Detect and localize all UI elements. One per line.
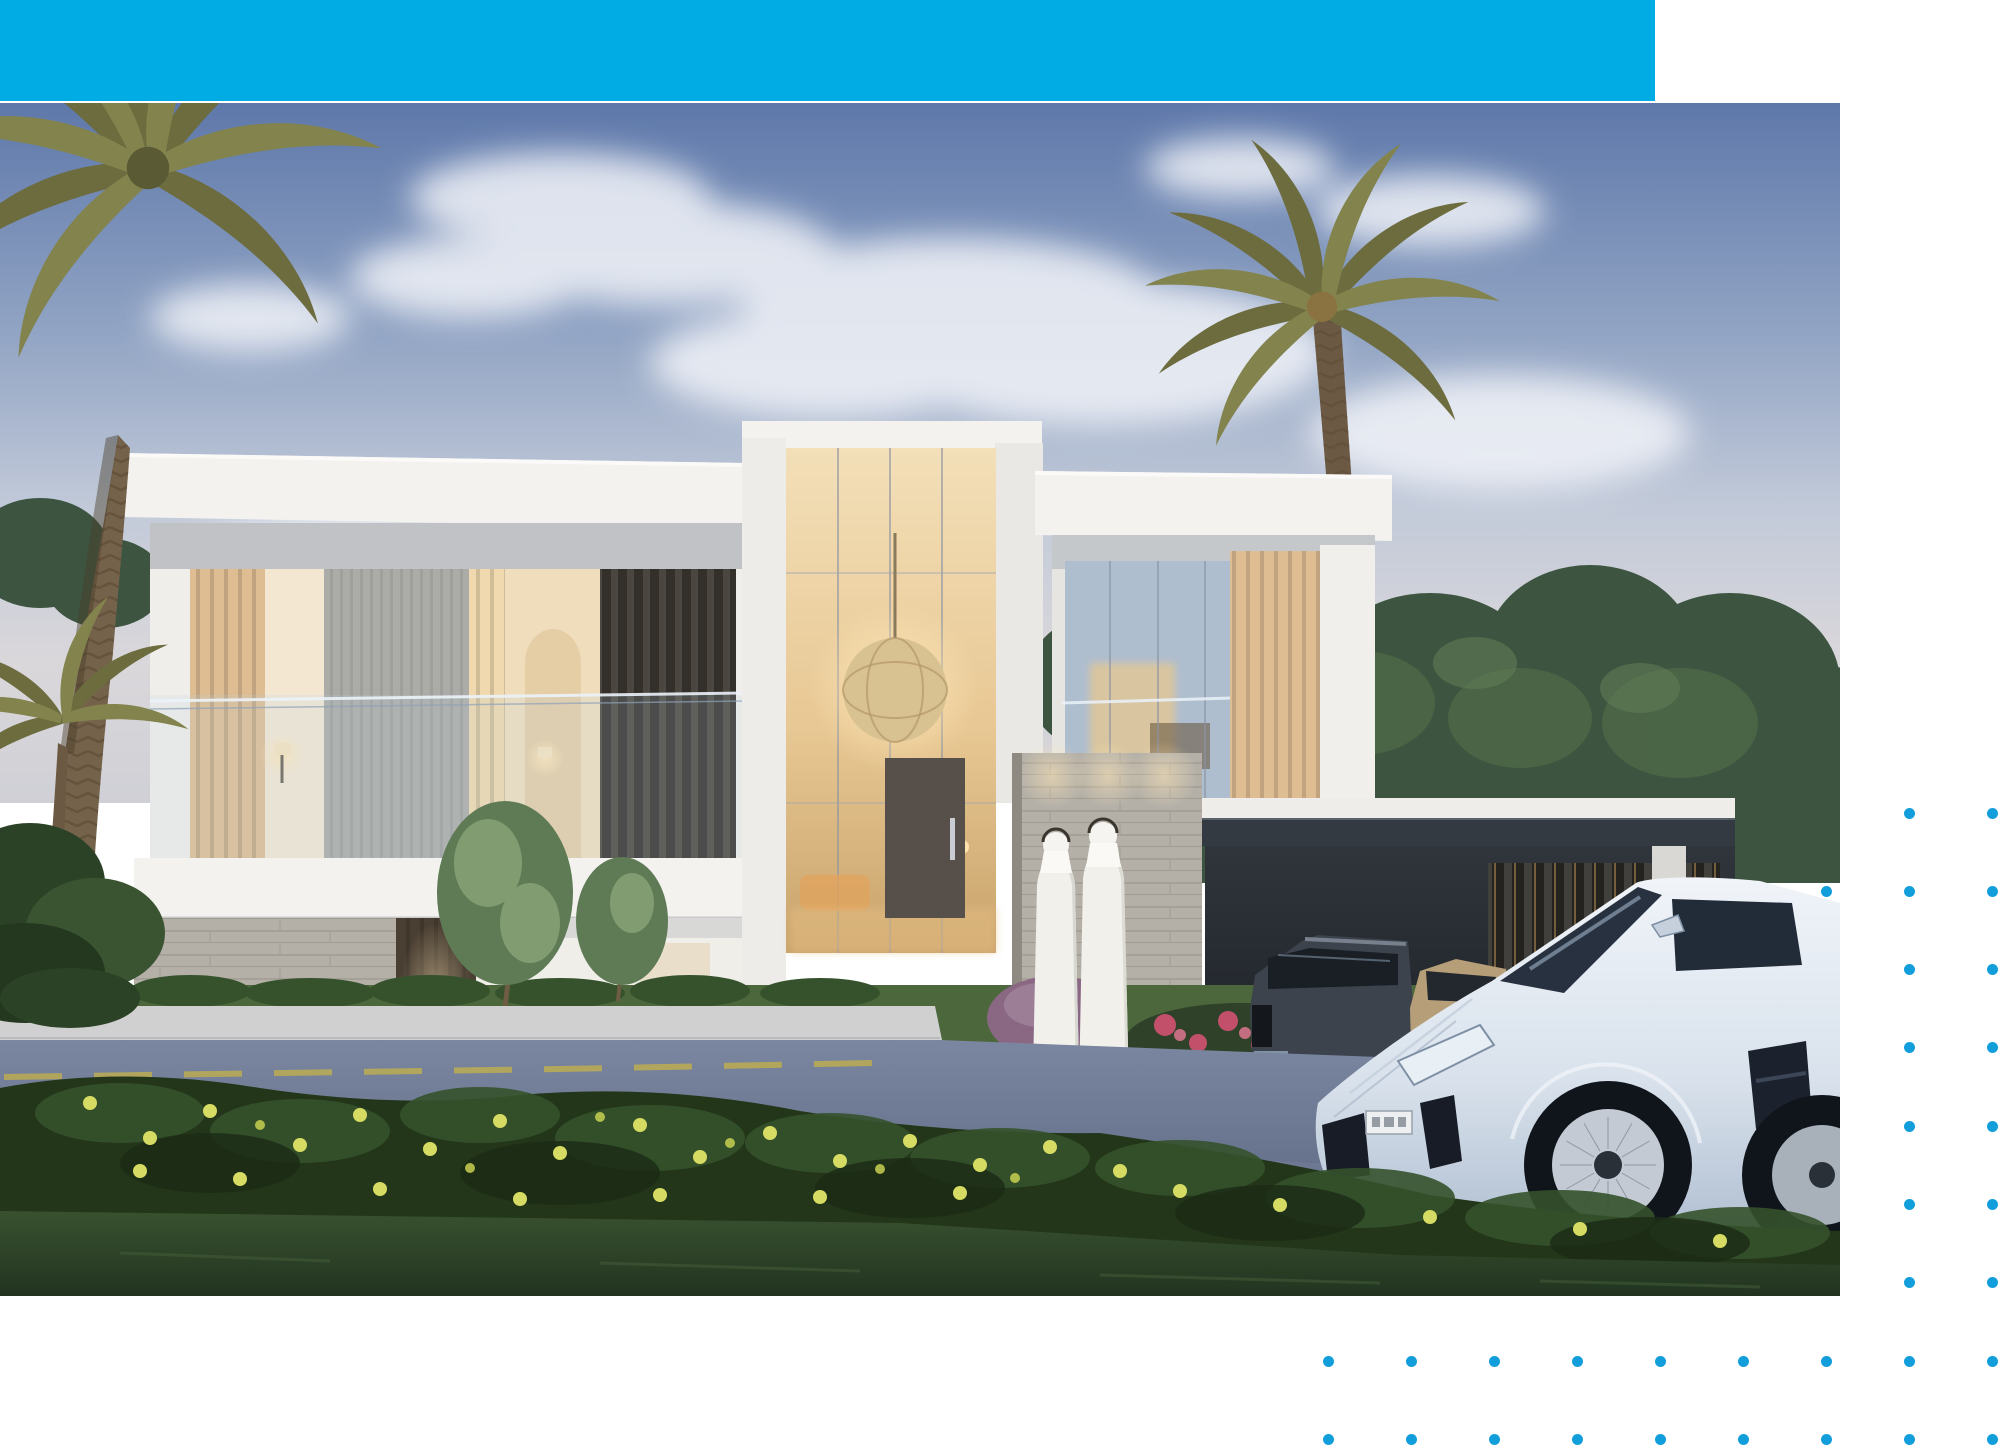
decor-dot (1987, 808, 1998, 819)
decor-dot (1904, 1199, 1915, 1210)
decor-dot (1904, 964, 1915, 975)
decor-dot (1323, 1434, 1334, 1445)
left-balcony-railing (150, 693, 745, 861)
decor-dot (1572, 1356, 1583, 1367)
decor-dot (1987, 1199, 1998, 1210)
decor-dot (1489, 1356, 1500, 1367)
entrance-block (742, 421, 1043, 1063)
decor-dot (1489, 1434, 1500, 1445)
decor-dot (1572, 1434, 1583, 1445)
decor-dot (1987, 1434, 1998, 1445)
decor-dot (1904, 1042, 1915, 1053)
decor-dot (1904, 1434, 1915, 1445)
decor-dot (1904, 1121, 1915, 1132)
top-accent-bar (0, 0, 1655, 101)
brochure-page (0, 0, 2000, 1445)
decor-dot (1987, 886, 1998, 897)
decor-dot (1821, 1356, 1832, 1367)
decor-dot (1655, 1356, 1666, 1367)
decor-dot (1987, 1121, 1998, 1132)
villa-scene (0, 103, 1840, 1296)
decor-dot (1904, 1277, 1915, 1288)
decor-dot (1655, 1434, 1666, 1445)
villa-photo (0, 103, 1840, 1296)
decor-dot (1904, 1356, 1915, 1367)
decor-dot (1323, 1356, 1334, 1367)
decor-dot (1406, 1434, 1417, 1445)
decor-dot (1987, 1042, 1998, 1053)
decor-dot (1738, 1434, 1749, 1445)
decor-dot (1987, 1277, 1998, 1288)
sidewalk (0, 1006, 942, 1040)
sphere-pendant-lamp (843, 638, 947, 742)
decor-dot (1904, 886, 1915, 897)
decor-dot (1904, 808, 1915, 819)
decor-dot (1821, 1434, 1832, 1445)
decor-dot (1987, 964, 1998, 975)
decor-dot (1987, 1356, 1998, 1367)
decor-dot (1738, 1356, 1749, 1367)
decor-dot (1406, 1356, 1417, 1367)
